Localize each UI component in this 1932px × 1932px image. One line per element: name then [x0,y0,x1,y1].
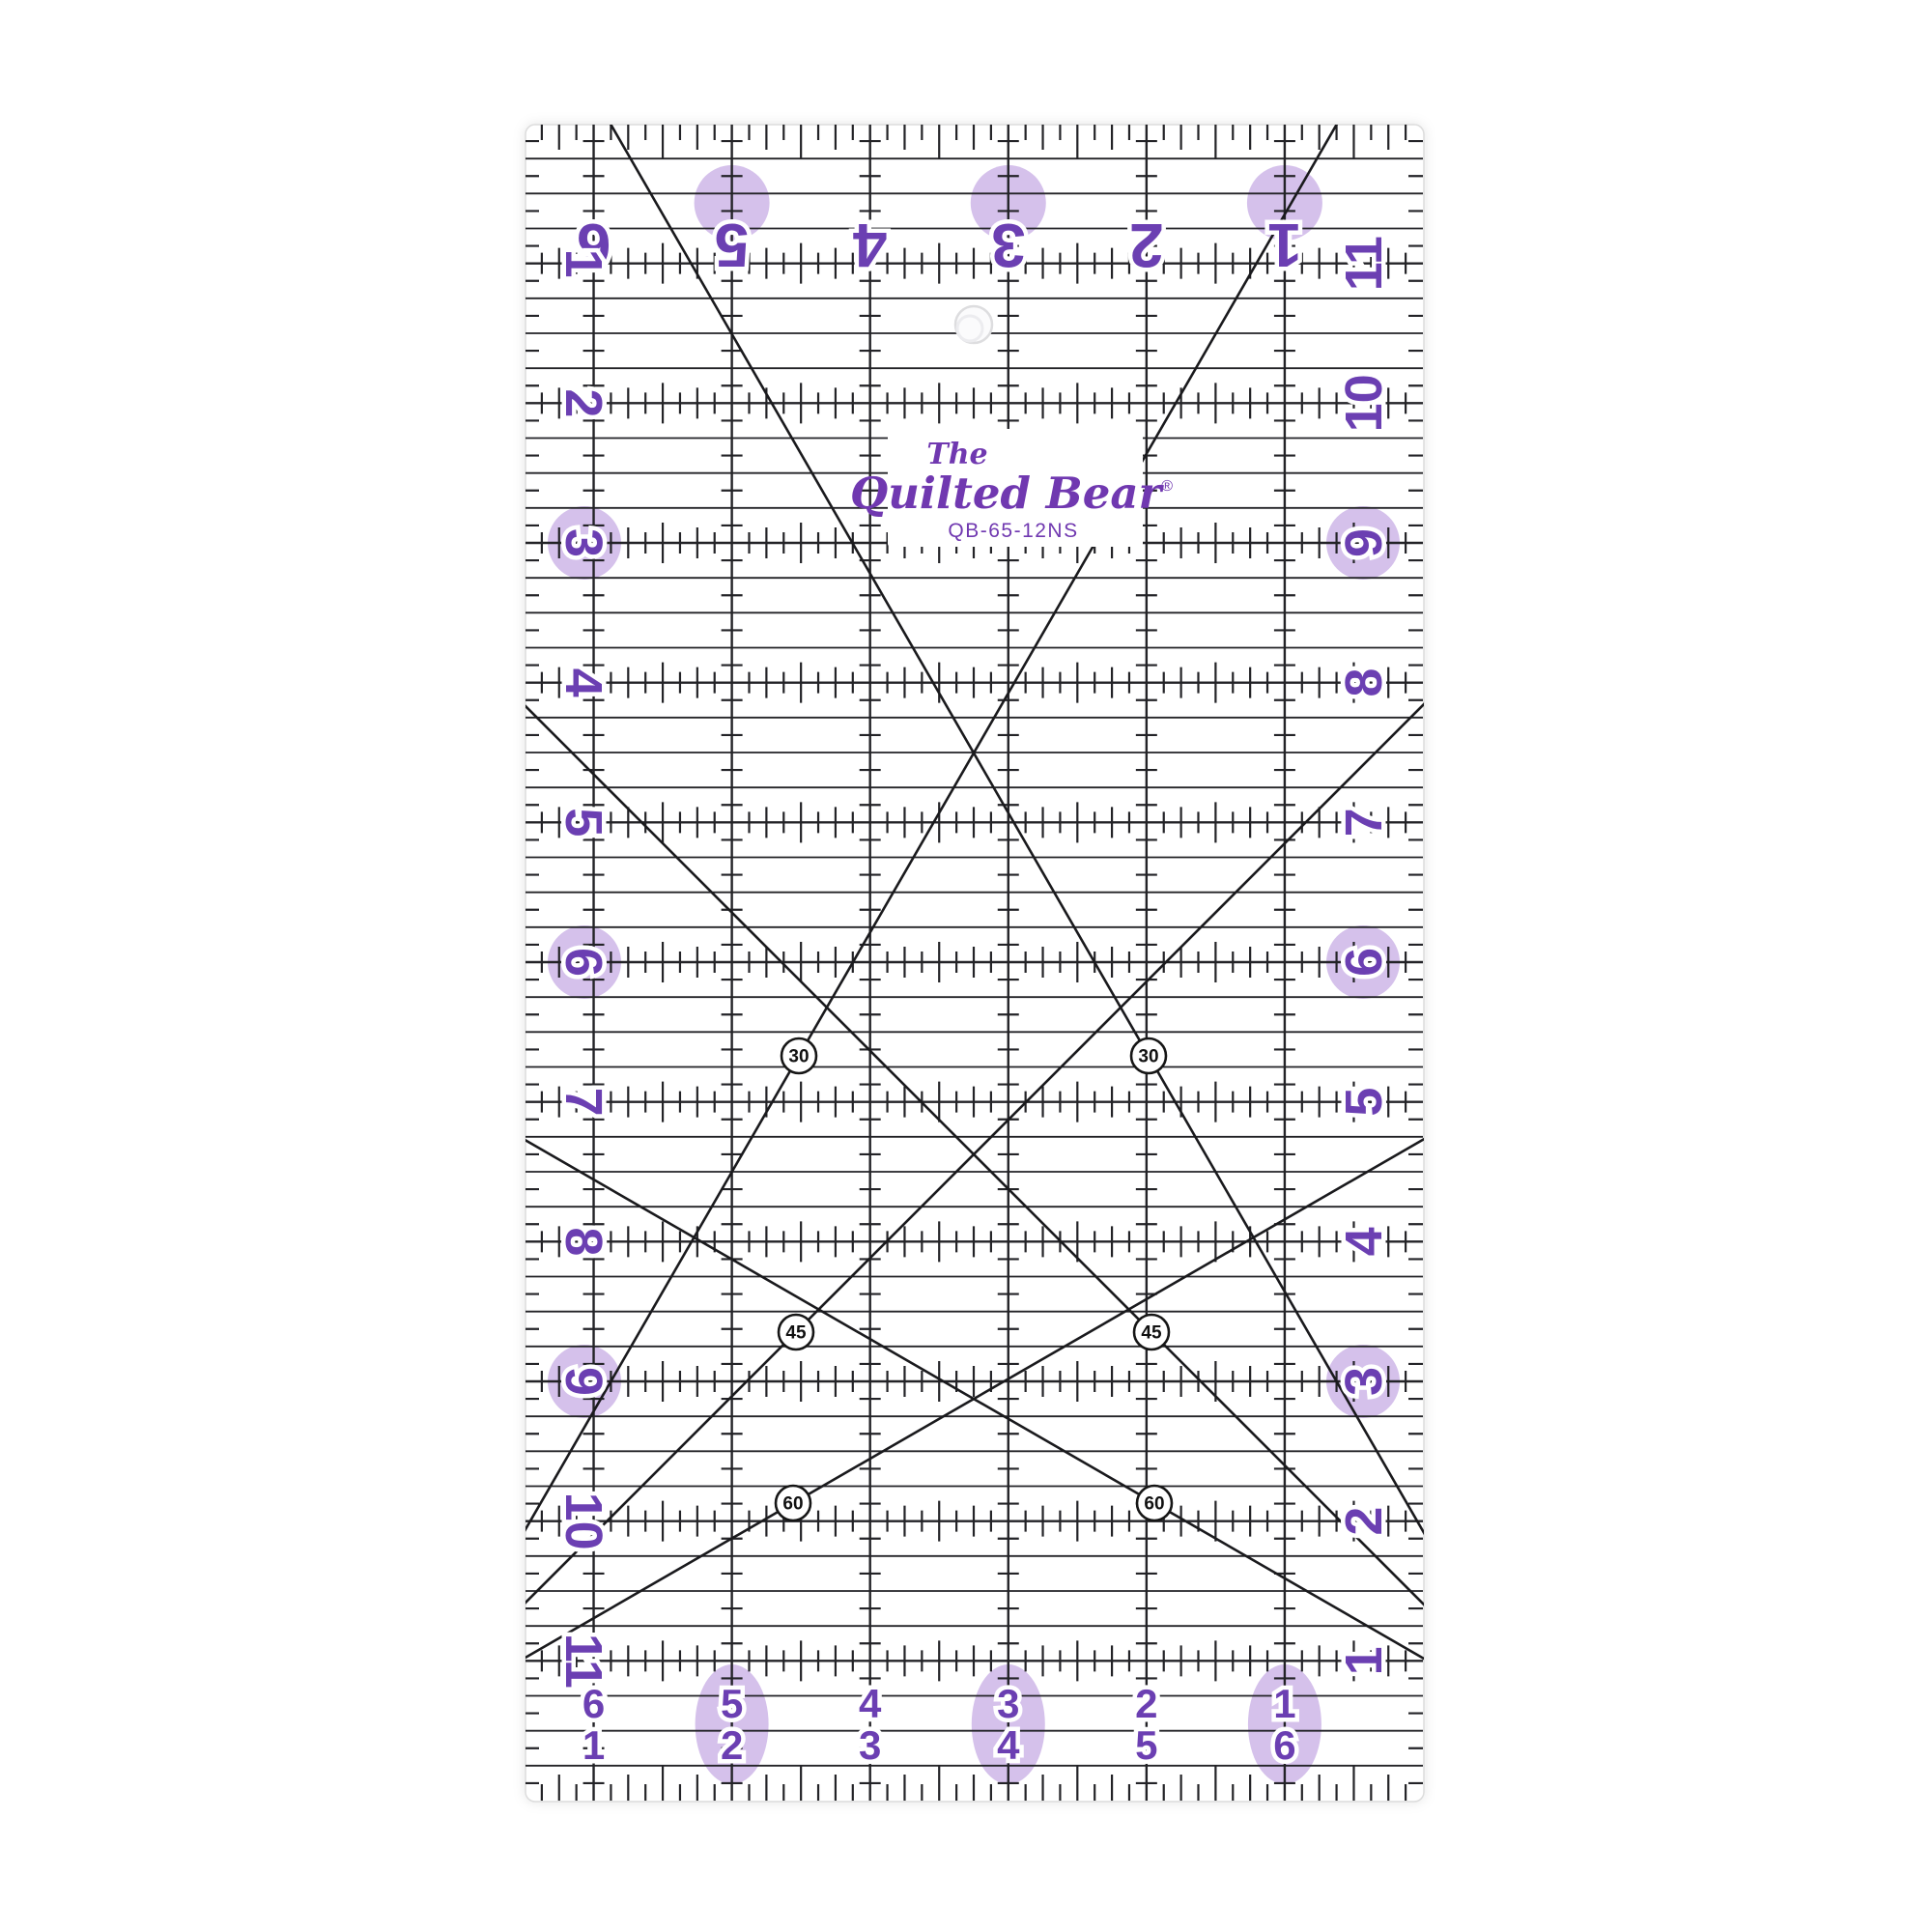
ruler-number: 5 [715,211,750,280]
ruler-number: 9 [1335,528,1393,557]
angle-label: 60 [782,1494,803,1515]
ruler-number: 1 [554,249,612,278]
ruler-number: 10 [1335,374,1393,432]
angle-label: 30 [1138,1047,1158,1067]
logo-the: The [926,438,987,471]
ruler-number: 2 [1335,1507,1393,1536]
ruler-number: 9 [554,1367,612,1396]
quilting-ruler: 303045456060 The Quilted Bear® QB-65-12N… [525,124,1425,1803]
ruler-number: 8 [1335,668,1393,697]
ruler-number: 2 [721,1722,743,1768]
logo-brand: Quilted Bear® [850,468,1173,519]
angle-label: 60 [1144,1494,1164,1515]
ruler-number: 4 [1335,1227,1393,1256]
angle-label: 30 [788,1047,809,1067]
hanging-hole [955,306,992,343]
angle-label: 45 [1141,1323,1162,1344]
ruler-number: 10 [554,1492,612,1550]
ruler-number: 1 [1273,1681,1295,1726]
ruler-number: 4 [554,668,612,697]
ruler-number: 2 [554,388,612,417]
ruler-number: 1 [1267,211,1302,280]
ruler-number: 5 [554,808,612,837]
ruler-number: 6 [554,948,612,977]
ruler-number: 3 [1335,1367,1393,1396]
ruler-number: 5 [721,1681,743,1726]
ruler-number: 3 [859,1722,881,1768]
logo-model: QB-65-12NS [948,520,1078,542]
ruler-number: 1 [1335,1646,1393,1675]
ruler-number: 4 [859,1681,882,1726]
ruler-number: 7 [1335,808,1393,837]
ruler-number: 7 [554,1088,612,1117]
brand-logo: The Quilted Bear® QB-65-12NS [850,429,1173,547]
angle-label: 45 [785,1323,807,1344]
ruler-number: 3 [997,1681,1019,1726]
ruler-number: 5 [1135,1722,1157,1768]
ruler-number: 4 [997,1722,1020,1768]
ruler-number: 6 [582,1681,605,1726]
ruler-number: 4 [852,211,887,280]
ruler-number: 2 [1135,1681,1157,1726]
ruler-number: 6 [1335,948,1393,977]
ruler-number: 2 [1129,211,1164,280]
ruler-number: 3 [991,211,1026,280]
ruler-number: 5 [1335,1088,1393,1117]
ruler-number: 1 [582,1722,605,1768]
registered-mark-icon: ® [1161,478,1173,495]
ruler-number: 3 [554,528,612,557]
ruler-number: 11 [1335,236,1393,291]
ruler-number: 6 [1273,1722,1295,1768]
product-photo: 303045456060 The Quilted Bear® QB-65-12N… [0,0,1932,1932]
ruler-number: 8 [554,1227,612,1256]
